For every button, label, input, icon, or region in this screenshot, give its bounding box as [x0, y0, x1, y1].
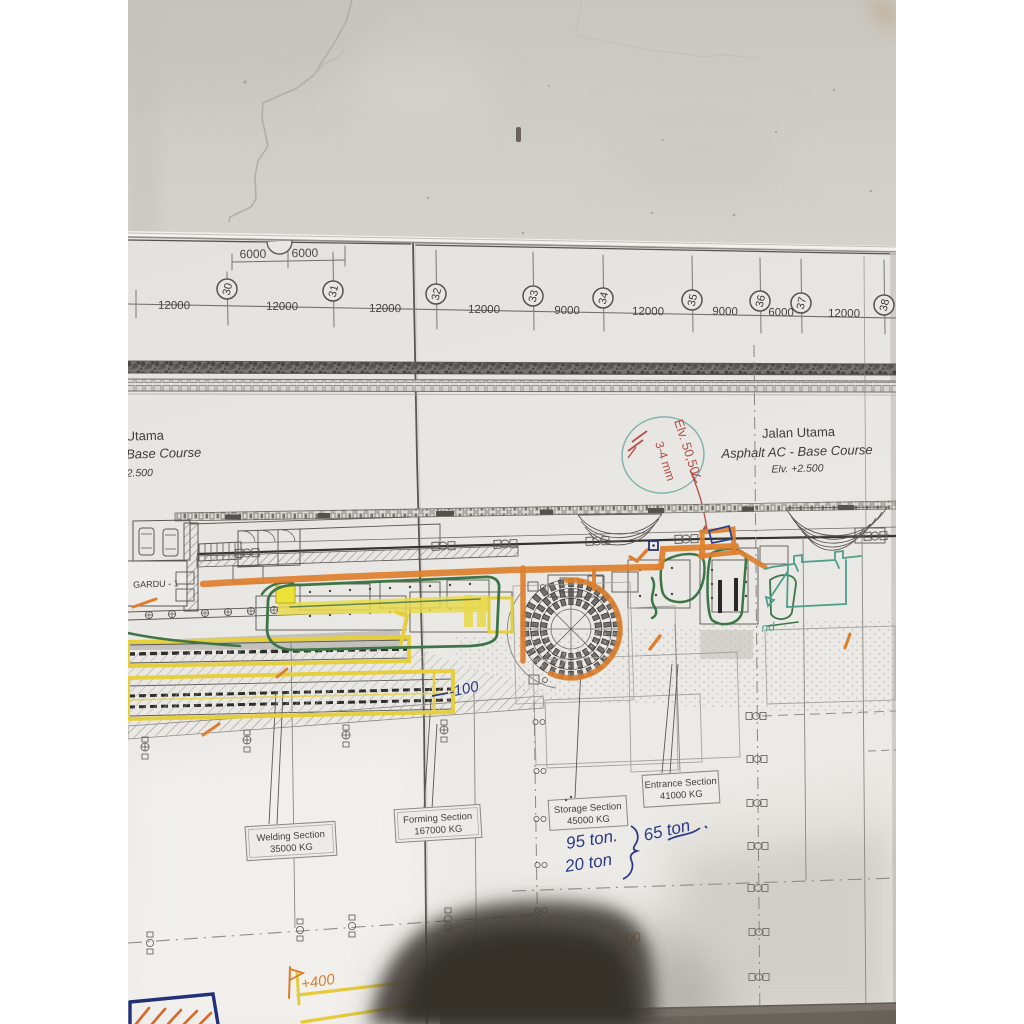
svg-text:12000: 12000 [828, 308, 860, 321]
svg-text:12000: 12000 [369, 303, 401, 316]
svg-text:nd: nd [760, 619, 775, 635]
svg-text:9000: 9000 [554, 305, 580, 317]
svg-text:9000: 9000 [712, 306, 738, 318]
svg-text:12000: 12000 [632, 306, 664, 319]
svg-text:6000: 6000 [768, 307, 794, 319]
svg-text:6000: 6000 [239, 247, 266, 261]
svg-text:Base Course: Base Course [126, 445, 202, 462]
svg-text:2.500: 2.500 [125, 467, 153, 480]
svg-text:GARDU - 1: GARDU - 1 [133, 578, 179, 590]
svg-text:12000: 12000 [158, 300, 190, 313]
svg-text:Elv. +2.500: Elv. +2.500 [771, 462, 824, 475]
svg-text:Utama: Utama [125, 428, 164, 444]
svg-text:12000: 12000 [468, 304, 500, 317]
svg-text:Jalan Utama: Jalan Utama [762, 424, 836, 441]
svg-text:6000: 6000 [291, 246, 318, 260]
svg-text:12000: 12000 [266, 301, 298, 314]
